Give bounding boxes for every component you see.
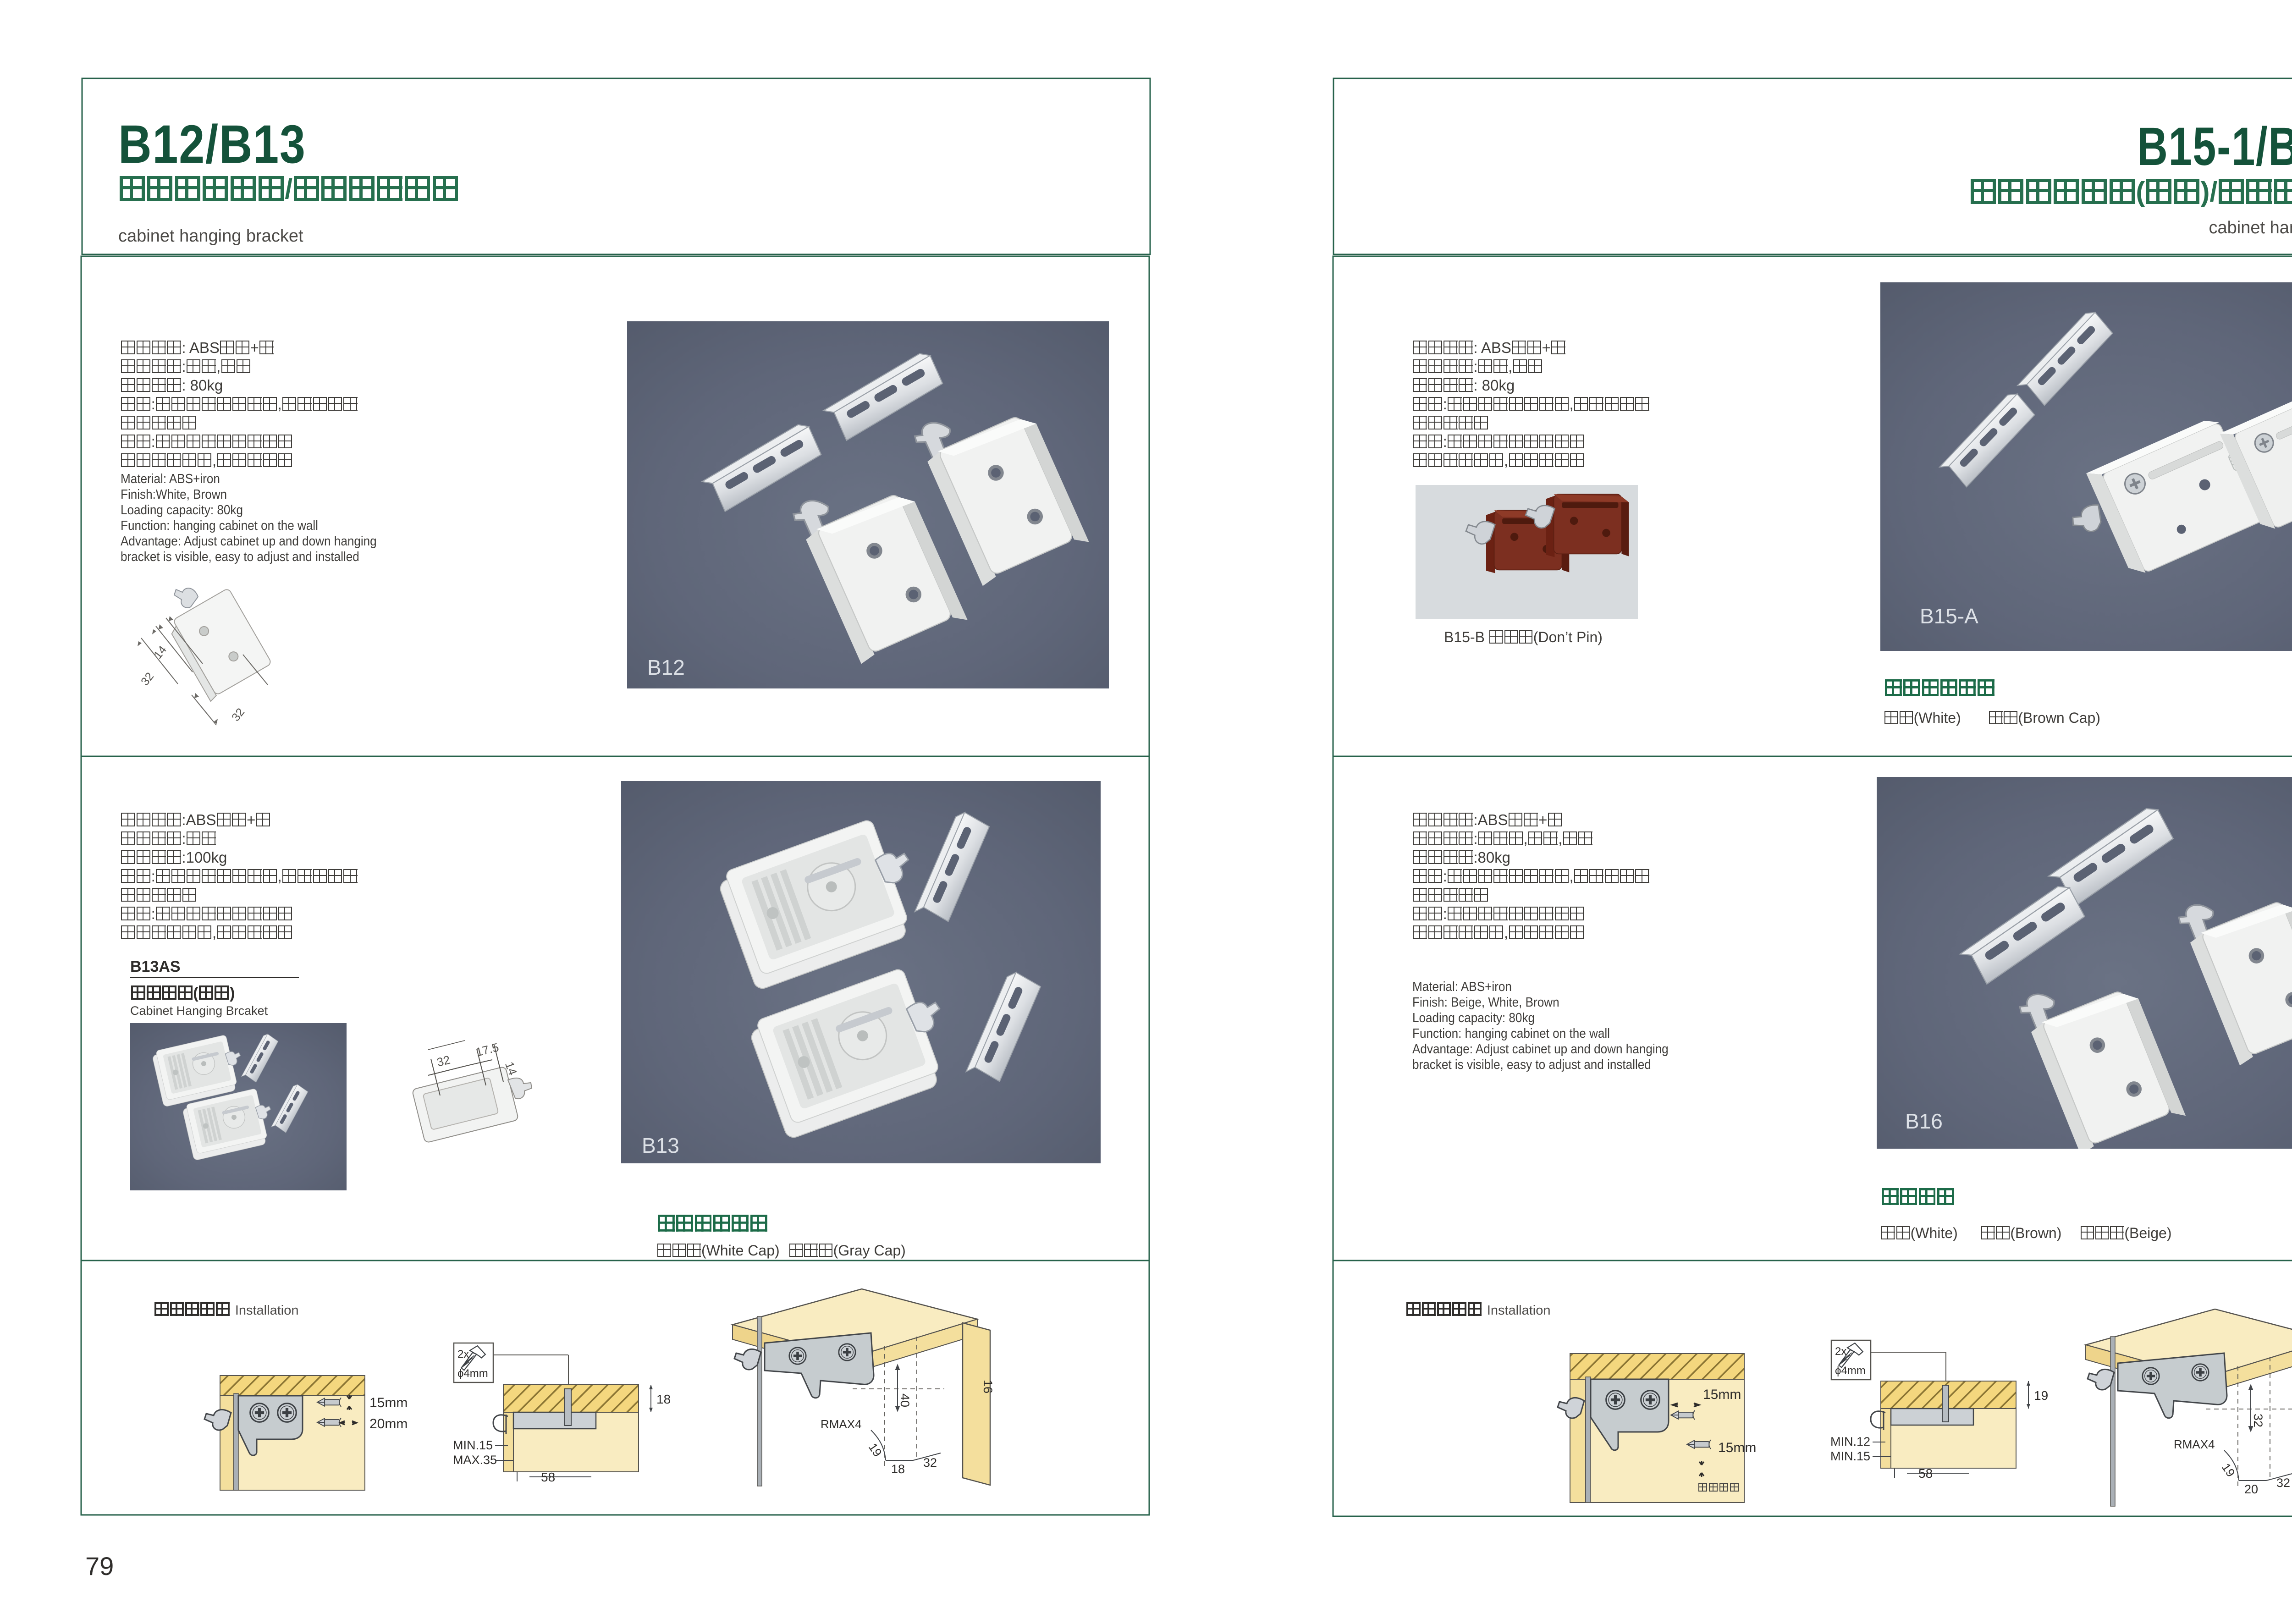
svg-text:MIN.15: MIN.15 [453, 1438, 493, 1452]
svg-text:19: 19 [2219, 1461, 2238, 1480]
svg-text:20mm: 20mm [369, 1416, 408, 1431]
svg-text:32: 32 [2251, 1414, 2265, 1427]
svg-text:2x: 2x [457, 1348, 469, 1360]
svg-text:ϕ4mm: ϕ4mm [457, 1367, 488, 1380]
svg-text:B15-A: B15-A [1920, 604, 1978, 628]
svg-text:ϕ4mm: ϕ4mm [1835, 1365, 1866, 1377]
svg-text:B13: B13 [642, 1134, 679, 1157]
svg-text:18: 18 [656, 1392, 671, 1406]
svg-text:MIN.15: MIN.15 [1830, 1449, 1870, 1463]
svg-text:17.5: 17.5 [474, 1040, 500, 1059]
svg-text:32: 32 [138, 670, 156, 688]
svg-text:32: 32 [229, 706, 247, 724]
svg-text:RMAX4: RMAX4 [2174, 1437, 2215, 1451]
svg-text:32: 32 [435, 1053, 452, 1069]
svg-text:15mm: 15mm [369, 1395, 408, 1410]
svg-text:14: 14 [151, 644, 169, 661]
svg-text:15mm: 15mm [1718, 1440, 1756, 1455]
svg-text:MAX.35: MAX.35 [453, 1453, 497, 1467]
svg-text:32: 32 [923, 1456, 937, 1470]
svg-text:20: 20 [2244, 1482, 2258, 1496]
svg-text:58: 58 [1918, 1466, 1933, 1481]
svg-text:15mm: 15mm [1703, 1387, 1741, 1402]
svg-text:16: 16 [981, 1380, 995, 1393]
svg-text:B16: B16 [1905, 1109, 1943, 1133]
svg-text:32: 32 [2276, 1476, 2290, 1490]
svg-text:RMAX4: RMAX4 [821, 1417, 862, 1431]
svg-text:2x: 2x [1835, 1345, 1846, 1358]
svg-text:58: 58 [541, 1470, 555, 1484]
svg-text:19: 19 [2034, 1388, 2048, 1403]
svg-text:19: 19 [866, 1441, 885, 1459]
svg-text:MIN.12: MIN.12 [1830, 1435, 1870, 1448]
svg-text:B12: B12 [647, 655, 685, 679]
svg-text:18: 18 [891, 1462, 905, 1476]
svg-text:40: 40 [898, 1393, 912, 1407]
